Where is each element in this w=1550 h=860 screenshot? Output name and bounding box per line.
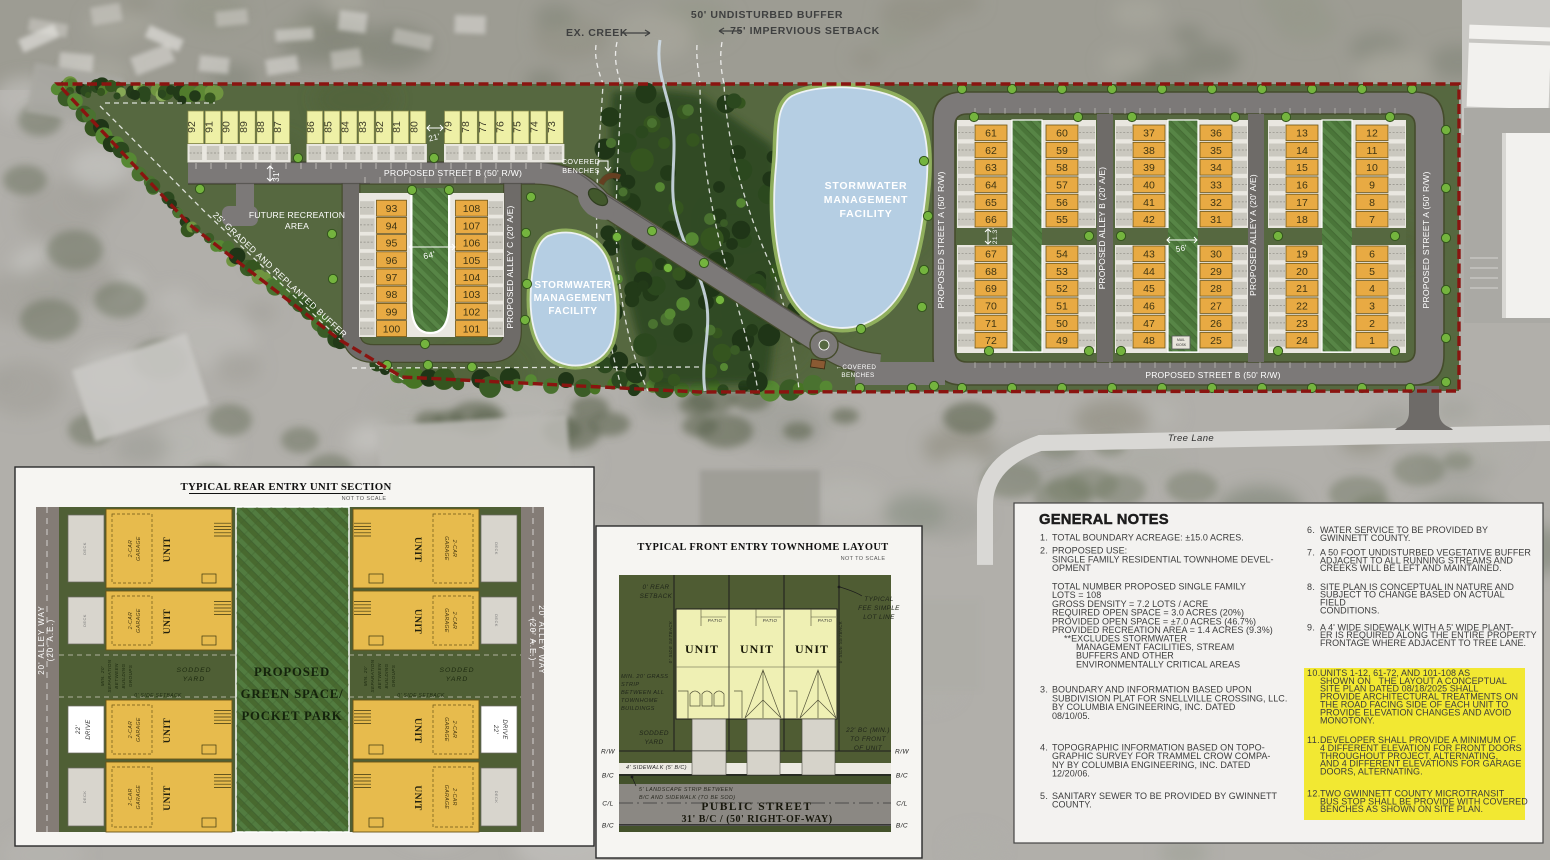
svg-text:SODDED: SODDED	[176, 667, 211, 674]
svg-text:61: 61	[985, 128, 997, 140]
svg-text:34: 34	[1210, 162, 1222, 174]
svg-text:UNIT: UNIT	[163, 785, 173, 811]
svg-text:72: 72	[985, 335, 997, 347]
svg-text:UNIT: UNIT	[685, 642, 719, 656]
svg-text:75' IMPERVIOUS SETBACK: 75' IMPERVIOUS SETBACK	[730, 25, 880, 37]
svg-text:103: 103	[463, 289, 481, 301]
svg-text:DECK: DECK	[82, 614, 87, 627]
svg-text:FUTURE RECREATION: FUTURE RECREATION	[249, 210, 345, 220]
svg-text:BENCHES AS SHOWN ON SITE PLAN.: BENCHES AS SHOWN ON SITE PLAN.	[1320, 804, 1483, 814]
svg-text:89: 89	[238, 121, 250, 133]
svg-text:57: 57	[1056, 180, 1068, 192]
svg-text:CREEKS WILL BE LEFT AND MAINTA: CREEKS WILL BE LEFT AND MAINTAINED.	[1320, 563, 1502, 573]
svg-text:24: 24	[1296, 335, 1308, 347]
svg-text:DECK: DECK	[494, 614, 499, 627]
svg-text:COVERED: COVERED	[562, 157, 600, 166]
svg-text:67: 67	[985, 249, 997, 261]
svg-text:UNIT: UNIT	[163, 718, 173, 744]
svg-text:22': 22'	[76, 725, 82, 735]
svg-text:0' SIDE SETBACK: 0' SIDE SETBACK	[668, 620, 673, 663]
svg-text:DECK: DECK	[494, 542, 499, 555]
svg-text:31: 31	[1210, 214, 1222, 226]
svg-text:8: 8	[1369, 197, 1375, 209]
svg-text:42: 42	[1143, 214, 1155, 226]
svg-text:1: 1	[1369, 335, 1375, 347]
svg-text:40: 40	[1143, 180, 1155, 192]
svg-text:86: 86	[305, 121, 317, 133]
svg-text:PROPOSED STREET B (50' R/W): PROPOSED STREET B (50' R/W)	[1145, 370, 1280, 380]
svg-text:YARD: YARD	[446, 676, 469, 683]
svg-text:BUILDING: BUILDING	[384, 664, 389, 689]
svg-text:49: 49	[1056, 335, 1068, 347]
svg-text:6: 6	[1369, 249, 1375, 261]
svg-text:4: 4	[1369, 283, 1375, 295]
svg-text:76: 76	[494, 121, 506, 133]
svg-text:PROPOSED ALLEY C (20' A/E): PROPOSED ALLEY C (20' A/E)	[505, 205, 515, 328]
svg-text:B/C AND SIDEWALK (TO BE SOD): B/C AND SIDEWALK (TO BE SOD)	[639, 795, 735, 801]
svg-text:84: 84	[340, 121, 352, 133]
svg-text:25: 25	[1210, 335, 1222, 347]
svg-text:9.: 9.	[1307, 622, 1315, 632]
svg-text:GWINNETT COUNTY.: GWINNETT COUNTY.	[1320, 533, 1410, 543]
svg-text:22: 22	[1296, 301, 1308, 313]
svg-text:UNIT: UNIT	[740, 642, 774, 656]
svg-text:STORMWATER: STORMWATER	[534, 280, 611, 291]
svg-text:11.: 11.	[1307, 735, 1320, 745]
svg-text:82: 82	[374, 121, 386, 133]
svg-text:KIOSK: KIOSK	[1176, 343, 1187, 347]
svg-text:10.: 10.	[1307, 668, 1321, 678]
svg-text:44: 44	[1143, 266, 1155, 278]
svg-text:13: 13	[1296, 128, 1308, 140]
svg-text:101: 101	[463, 324, 481, 336]
svg-text:B/C: B/C	[602, 773, 614, 780]
svg-text:65: 65	[985, 197, 997, 209]
svg-text:PATIO: PATIO	[818, 618, 833, 623]
svg-text:71: 71	[985, 318, 997, 330]
svg-text:59: 59	[1056, 145, 1068, 157]
svg-text:36: 36	[1210, 128, 1222, 140]
svg-text:21: 21	[1296, 283, 1308, 295]
svg-text:NOT TO SCALE: NOT TO SCALE	[841, 556, 886, 562]
svg-text:31': 31'	[272, 170, 281, 182]
svg-text:26: 26	[1210, 318, 1222, 330]
svg-text:ENVIRONMENTALLY CRITICAL AREAS: ENVIRONMENTALLY CRITICAL AREAS	[1076, 659, 1240, 669]
svg-text:2-CAR: 2-CAR	[128, 540, 134, 559]
svg-text:TOWNHOME: TOWNHOME	[621, 698, 658, 704]
svg-text:GENERAL NOTES: GENERAL NOTES	[1039, 512, 1169, 528]
svg-text:MONOTONY.: MONOTONY.	[1320, 715, 1375, 725]
svg-text:BETWEEN: BETWEEN	[114, 663, 119, 689]
svg-text:SODDED: SODDED	[439, 667, 474, 674]
svg-text:46: 46	[1143, 301, 1155, 313]
svg-text:GARAGE: GARAGE	[136, 717, 142, 742]
svg-text:3: 3	[1369, 301, 1375, 313]
svg-text:DRIVE: DRIVE	[86, 719, 92, 740]
svg-text:BUILDINGS: BUILDINGS	[621, 706, 655, 712]
svg-text:99: 99	[386, 306, 398, 318]
svg-text:15: 15	[1296, 162, 1308, 174]
svg-text:51: 51	[1056, 301, 1068, 313]
svg-text:7: 7	[1369, 214, 1375, 226]
svg-text:32: 32	[1210, 197, 1222, 209]
svg-text:B/C: B/C	[896, 823, 908, 830]
svg-text:2-CAR: 2-CAR	[451, 611, 457, 630]
svg-text:66: 66	[985, 214, 997, 226]
svg-text:1.: 1.	[1040, 533, 1048, 543]
svg-text:19: 19	[1296, 249, 1308, 261]
svg-text:0' REAR: 0' REAR	[642, 584, 669, 591]
svg-text:R/W: R/W	[601, 749, 615, 756]
svg-text:FRONTAGE WHERE ADJACENT TO TRE: FRONTAGE WHERE ADJACENT TO TREE LANE.	[1320, 638, 1526, 648]
svg-text:53: 53	[1056, 266, 1068, 278]
svg-text:(20' A.E.): (20' A.E.)	[46, 619, 55, 662]
svg-text:DECK: DECK	[82, 542, 87, 555]
svg-text:83: 83	[357, 121, 369, 133]
svg-text:BENCHES: BENCHES	[562, 166, 600, 175]
svg-text:PROPOSED: PROPOSED	[254, 665, 330, 679]
svg-text:DECK: DECK	[494, 791, 499, 804]
svg-text:PATIO: PATIO	[763, 618, 778, 623]
svg-text:PROPOSED STREET B (50' R/W): PROPOSED STREET B (50' R/W)	[384, 168, 522, 178]
svg-text:YARD: YARD	[183, 676, 206, 683]
svg-text:FACILITY: FACILITY	[548, 306, 597, 317]
svg-text:CONDITIONS.: CONDITIONS.	[1320, 606, 1380, 616]
svg-text:22': 22'	[492, 724, 498, 734]
svg-text:56: 56	[1056, 197, 1068, 209]
svg-text:LOT LINE: LOT LINE	[863, 614, 895, 621]
svg-text:YARD: YARD	[644, 739, 663, 746]
svg-text:62: 62	[985, 145, 997, 157]
svg-text:FEE SIMPLE: FEE SIMPLE	[858, 605, 900, 612]
svg-text:41: 41	[1143, 197, 1155, 209]
svg-text:52: 52	[1056, 283, 1068, 295]
svg-text:SUBJECT TO CHANGE BASED ON ACT: SUBJECT TO CHANGE BASED ON ACTUAL	[1320, 590, 1505, 600]
svg-text:BUILDING: BUILDING	[121, 664, 126, 689]
svg-text:47: 47	[1143, 318, 1155, 330]
svg-text:TYPICAL: TYPICAL	[864, 596, 893, 603]
svg-text:50: 50	[1056, 318, 1068, 330]
svg-text:74: 74	[529, 121, 541, 133]
svg-text:2-CAR: 2-CAR	[451, 787, 457, 806]
svg-text:37: 37	[1143, 128, 1155, 140]
svg-text:2-CAR: 2-CAR	[128, 721, 134, 740]
svg-text:UNIT: UNIT	[795, 642, 829, 656]
svg-text:20' ALLEY WAY: 20' ALLEY WAY	[37, 605, 46, 675]
svg-text:11: 11	[1367, 145, 1378, 157]
svg-text:2-CAR: 2-CAR	[128, 788, 134, 807]
svg-text:12/20/06.: 12/20/06.	[1052, 769, 1090, 779]
svg-text:95: 95	[386, 238, 398, 250]
svg-text:GARAGE: GARAGE	[443, 536, 449, 561]
svg-text:91: 91	[203, 121, 215, 133]
svg-text:10: 10	[1366, 162, 1378, 174]
svg-text:GARAGE: GARAGE	[443, 608, 449, 633]
svg-text:6.: 6.	[1307, 525, 1315, 535]
svg-text:97: 97	[386, 272, 398, 284]
svg-text:UNIT: UNIT	[412, 609, 422, 635]
svg-text:UNIT: UNIT	[412, 537, 422, 563]
svg-text:0' SIDE SETBACK: 0' SIDE SETBACK	[397, 693, 445, 699]
svg-text:96: 96	[386, 255, 398, 267]
svg-text:58: 58	[1056, 162, 1068, 174]
svg-text:PROPOSED ALLEY A (20' A/E): PROPOSED ALLEY A (20' A/E)	[1248, 174, 1258, 296]
svg-text:PROPOSED STREET A (50' R/W): PROPOSED STREET A (50' R/W)	[1421, 171, 1431, 308]
svg-text:TO FRONT: TO FRONT	[850, 736, 886, 743]
svg-text:2-CAR: 2-CAR	[128, 612, 134, 631]
svg-text:102: 102	[463, 306, 481, 318]
svg-text:(20' A.E.): (20' A.E.)	[528, 619, 537, 662]
svg-text:14: 14	[1296, 145, 1308, 157]
svg-text:22' BC (MIN.): 22' BC (MIN.)	[845, 727, 890, 734]
svg-text:GARAGE: GARAGE	[443, 785, 449, 810]
svg-text:COUNTY.: COUNTY.	[1052, 800, 1092, 810]
svg-text:0' SIDE SETBACK: 0' SIDE SETBACK	[134, 693, 182, 699]
svg-text:60: 60	[1056, 128, 1068, 140]
svg-text:OF UNIT: OF UNIT	[854, 745, 883, 752]
svg-text:55: 55	[1056, 214, 1068, 226]
svg-text:GARAGE: GARAGE	[136, 785, 142, 810]
svg-text:POCKET PARK: POCKET PARK	[241, 709, 342, 723]
svg-text:28: 28	[1210, 283, 1222, 295]
svg-text:45: 45	[1143, 283, 1155, 295]
svg-text:94: 94	[386, 220, 398, 232]
svg-text:UNIT: UNIT	[412, 785, 422, 811]
svg-text:GROUPS: GROUPS	[391, 664, 396, 687]
svg-text:69: 69	[985, 283, 997, 295]
svg-text:08/10/05.: 08/10/05.	[1052, 711, 1090, 721]
svg-text:DRIVE: DRIVE	[501, 719, 507, 740]
svg-text:DECK: DECK	[82, 791, 87, 804]
svg-text:85: 85	[322, 121, 334, 133]
svg-text:63: 63	[985, 162, 997, 174]
svg-text:UNIT: UNIT	[412, 718, 422, 744]
svg-text:73: 73	[546, 121, 558, 133]
svg-text:BETWEEN: BETWEEN	[377, 663, 382, 689]
svg-text:AREA: AREA	[285, 221, 309, 231]
svg-text:MIN. 20' GRASS: MIN. 20' GRASS	[621, 674, 668, 680]
svg-text:C/L: C/L	[896, 801, 907, 808]
svg-text:MAIL: MAIL	[1177, 338, 1185, 342]
svg-text:MIN. 20': MIN. 20'	[100, 666, 105, 686]
svg-text:TYPICAL REAR ENTRY UNIT SECT: TYPICAL REAR ENTRY UNIT SECTION	[180, 481, 391, 493]
svg-text:3.: 3.	[1040, 685, 1048, 695]
svg-text:92: 92	[186, 121, 198, 133]
svg-text:54: 54	[1056, 249, 1068, 261]
svg-text:88: 88	[255, 121, 267, 133]
svg-text:81: 81	[391, 121, 403, 133]
svg-text:5: 5	[1369, 266, 1375, 278]
svg-text:108: 108	[463, 203, 481, 215]
svg-text:107: 107	[463, 220, 481, 232]
svg-text:4.: 4.	[1040, 742, 1048, 752]
svg-text:BETWEEN ALL: BETWEEN ALL	[621, 690, 664, 696]
svg-text:SEPARATION: SEPARATION	[370, 659, 375, 692]
svg-text:106: 106	[463, 238, 481, 250]
svg-text:68: 68	[985, 266, 997, 278]
svg-text:48: 48	[1143, 335, 1155, 347]
svg-text:8.: 8.	[1307, 582, 1315, 592]
svg-text:5.: 5.	[1040, 791, 1048, 801]
svg-text:39: 39	[1143, 162, 1155, 174]
svg-text:79: 79	[443, 121, 455, 133]
svg-text:78: 78	[460, 121, 472, 133]
svg-text:GARAGE: GARAGE	[136, 536, 142, 561]
svg-text:17: 17	[1296, 197, 1308, 209]
svg-text:87: 87	[272, 121, 284, 133]
svg-text:12.: 12.	[1307, 788, 1321, 798]
svg-text:GARAGE: GARAGE	[443, 717, 449, 742]
svg-text:R/W: R/W	[895, 749, 909, 756]
svg-text:64: 64	[985, 180, 997, 192]
svg-text:MANAGEMENT: MANAGEMENT	[824, 194, 908, 206]
svg-text:5' LANDSCAPE STRIP BETWEEN: 5' LANDSCAPE STRIP BETWEEN	[639, 787, 733, 793]
svg-text:STORMWATER: STORMWATER	[825, 180, 908, 192]
svg-text:SETBACK: SETBACK	[640, 593, 673, 600]
svg-text:77: 77	[477, 121, 489, 133]
svg-text:NOT TO SCALE: NOT TO SCALE	[342, 496, 387, 502]
svg-text:PROPOSED ALLEY B (20' A/E): PROPOSED ALLEY B (20' A/E)	[1097, 167, 1107, 290]
svg-text:Tree Lane: Tree Lane	[1168, 433, 1214, 444]
svg-text:SEPARATION: SEPARATION	[107, 659, 112, 692]
svg-text:16: 16	[1296, 180, 1308, 192]
svg-text:UNIT: UNIT	[163, 609, 173, 635]
svg-text:2: 2	[1369, 318, 1375, 330]
svg-text:0' SIDE SETBACK: 0' SIDE SETBACK	[838, 620, 843, 663]
svg-text:STRIP: STRIP	[621, 682, 639, 688]
svg-text:PUBLIC STREET: PUBLIC STREET	[701, 801, 812, 813]
svg-text:B/C: B/C	[896, 773, 908, 780]
svg-text:2-CAR: 2-CAR	[451, 720, 457, 739]
svg-text:GARAGE: GARAGE	[136, 608, 142, 633]
svg-text:90: 90	[221, 121, 233, 133]
svg-text:18: 18	[1296, 214, 1308, 226]
svg-text:TOTAL BOUNDARY ACREAGE: ±15.0: TOTAL BOUNDARY ACREAGE: ±15.0 ACRES.	[1052, 533, 1244, 543]
svg-text:C/L: C/L	[602, 801, 613, 808]
svg-text:PROPOSED STREET A (50' R/W): PROPOSED STREET A (50' R/W)	[936, 171, 946, 308]
svg-text:B/C: B/C	[602, 823, 614, 830]
svg-text:80: 80	[408, 121, 420, 133]
svg-text:9: 9	[1369, 180, 1375, 192]
svg-text:12: 12	[1366, 128, 1378, 140]
svg-text:30: 30	[1210, 249, 1222, 261]
svg-text:31' B/C / (50' RIGHT-OF-WA: 31' B/C / (50' RIGHT-OF-WAY)	[681, 814, 832, 825]
svg-text:EX. CREEK: EX. CREEK	[566, 27, 628, 39]
svg-text:7.: 7.	[1307, 547, 1315, 557]
svg-text:SODDED: SODDED	[639, 730, 669, 737]
svg-text:43: 43	[1143, 249, 1155, 261]
svg-text:93: 93	[386, 203, 398, 215]
svg-text:35: 35	[1210, 145, 1222, 157]
svg-text:75: 75	[512, 121, 524, 133]
svg-text:4' SIDEWALK (5' B/C): 4' SIDEWALK (5' B/C)	[626, 765, 687, 771]
svg-text:21.3': 21.3'	[992, 228, 999, 245]
svg-text:UNIT: UNIT	[163, 537, 173, 563]
svg-text:20' ALLEY WAY: 20' ALLEY WAY	[537, 605, 546, 675]
svg-text:DOORS, ALTERNATING.: DOORS, ALTERNATING.	[1320, 767, 1423, 777]
svg-text:100: 100	[383, 324, 401, 336]
svg-text:GREEN SPACE/: GREEN SPACE/	[241, 687, 344, 701]
svg-text:MANAGEMENT: MANAGEMENT	[534, 293, 613, 304]
svg-text:GROUPS: GROUPS	[128, 664, 133, 687]
svg-text:20: 20	[1296, 266, 1308, 278]
svg-text:98: 98	[386, 289, 398, 301]
svg-text:27: 27	[1210, 301, 1222, 313]
svg-text:TYPICAL FRONT ENTRY TOWNHOME: TYPICAL FRONT ENTRY TOWNHOME LAYOUT	[637, 542, 888, 553]
svg-text:70: 70	[985, 301, 997, 313]
svg-text:FACILITY: FACILITY	[839, 208, 892, 220]
svg-text:MIN. 20': MIN. 20'	[363, 666, 368, 686]
svg-text:33: 33	[1210, 180, 1222, 192]
svg-text:OPMENT: OPMENT	[1052, 563, 1091, 573]
svg-text:BENCHES: BENCHES	[841, 372, 874, 379]
svg-text:←COVERED: ←COVERED	[836, 364, 877, 371]
svg-text:104: 104	[463, 272, 481, 284]
svg-text:38: 38	[1143, 145, 1155, 157]
svg-text:2-CAR: 2-CAR	[451, 539, 457, 558]
svg-text:29: 29	[1210, 266, 1222, 278]
svg-text:PATIO: PATIO	[708, 618, 723, 623]
svg-text:23: 23	[1296, 318, 1308, 330]
svg-text:2.: 2.	[1040, 546, 1048, 556]
svg-text:105: 105	[463, 255, 481, 267]
svg-text:50' UNDISTURBED BUFFER: 50' UNDISTURBED BUFFER	[691, 9, 843, 21]
